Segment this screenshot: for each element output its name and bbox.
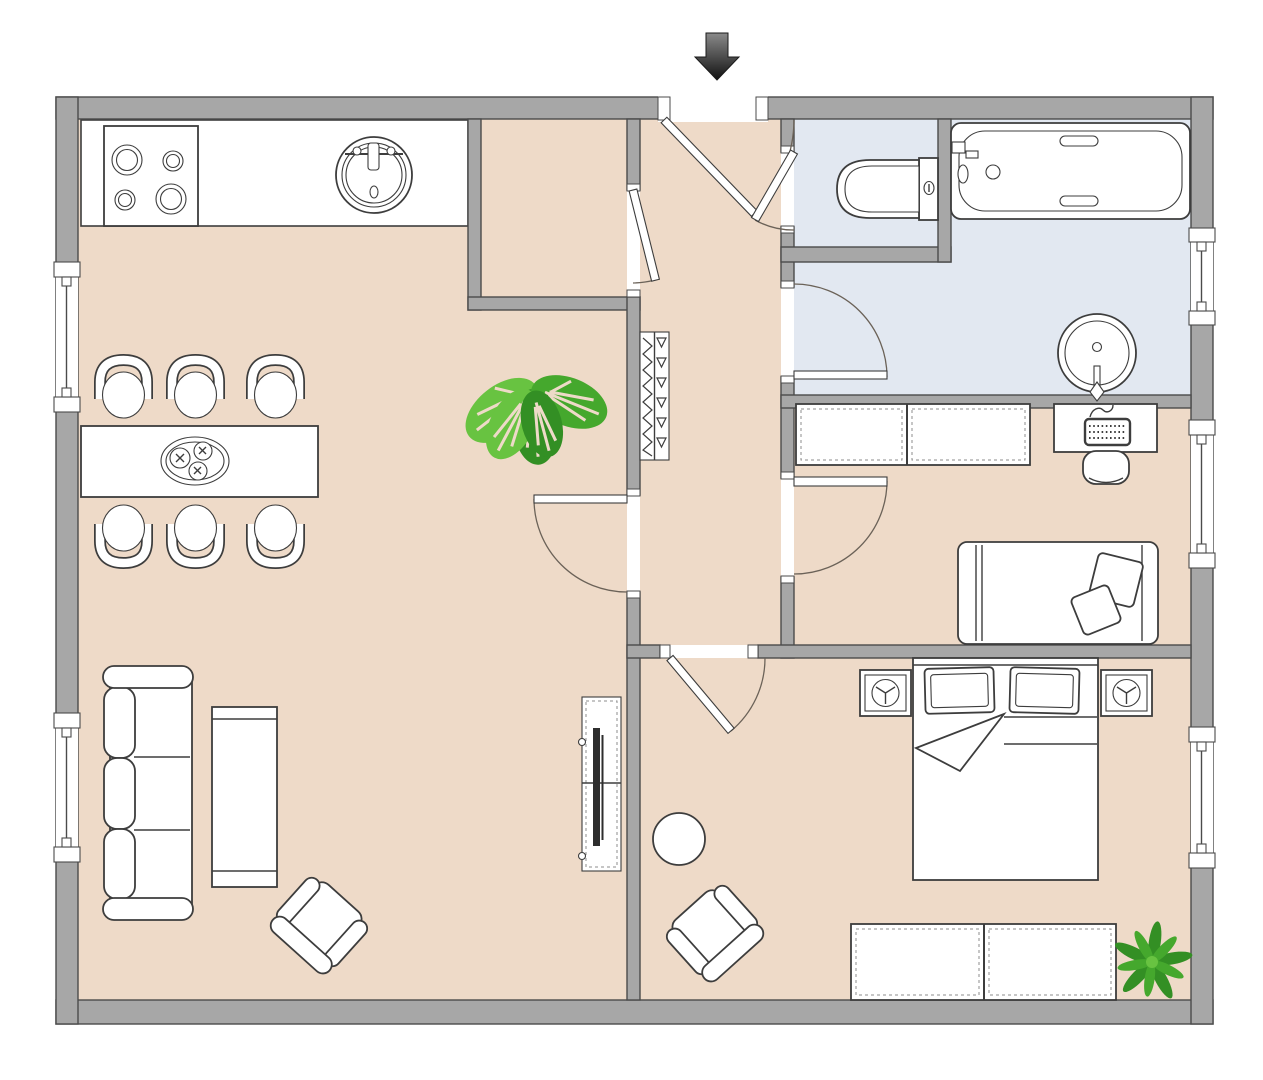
window-right-bedroom [1189, 727, 1215, 868]
desk [1054, 404, 1157, 452]
wall-hall-left-mid [627, 297, 640, 495]
bathtub-icon [951, 123, 1190, 219]
window-right-bathroom [1189, 228, 1215, 325]
living-door-opening [627, 495, 640, 592]
wall-bedroom-top-left [627, 645, 660, 658]
coffee-table [212, 707, 277, 887]
wall-wc-right [938, 119, 951, 262]
tv-cabinet [579, 697, 622, 871]
office-door-opening [781, 478, 794, 577]
wall-bottom [56, 1000, 1213, 1024]
cap [781, 576, 794, 583]
office-wardrobe [796, 404, 1030, 465]
wc [837, 158, 938, 220]
speaker-left-icon [860, 670, 911, 716]
single-bed [958, 542, 1158, 644]
wall-bedroom-top-right [758, 645, 1191, 658]
desk-chair [1083, 451, 1129, 484]
cap [748, 645, 758, 658]
wall-hall-right-3 [781, 377, 794, 478]
round-side-table [653, 813, 705, 865]
wall-left [56, 97, 78, 1024]
entry-arrow-icon [695, 33, 739, 80]
wall-nook-left [468, 119, 481, 310]
coat-wardrobe-zigzag-icon [640, 332, 669, 460]
cap [781, 376, 794, 383]
entry-jamb-right [756, 97, 768, 120]
wall-top [56, 97, 1213, 119]
dresser [851, 924, 1116, 1000]
cap [627, 290, 640, 297]
cap [627, 591, 640, 598]
tv-icon [593, 728, 600, 846]
double-bed [913, 658, 1098, 880]
pillow [924, 667, 994, 714]
fruit-bowl-icon [161, 437, 229, 485]
wall-nook-bottom [468, 297, 640, 310]
toilet-icon [837, 158, 938, 220]
floor-plan-page [0, 0, 1263, 1080]
window-left-1 [54, 262, 80, 412]
entry-jamb-left [658, 97, 670, 120]
keyboard-icon [1085, 419, 1130, 445]
pillow [1009, 667, 1079, 714]
bath-door-opening [781, 287, 794, 377]
sofa [103, 666, 193, 920]
hallway [640, 332, 669, 460]
wall-nook-right-top [627, 119, 640, 190]
wall-wc-bottom [781, 247, 951, 262]
bedroom-door-opening [660, 645, 758, 658]
window-right-office [1189, 420, 1215, 568]
dining-area [81, 360, 318, 563]
cap [660, 645, 670, 658]
window-left-2 [54, 713, 80, 862]
stove-icon [104, 126, 198, 226]
cap [781, 472, 794, 479]
entry-opening [658, 95, 768, 122]
speaker-right-icon [1101, 670, 1152, 716]
floor-plan-drawing [0, 0, 1263, 1080]
cap [627, 489, 640, 496]
cap [781, 281, 794, 288]
kitchen-sink-icon [336, 137, 412, 213]
